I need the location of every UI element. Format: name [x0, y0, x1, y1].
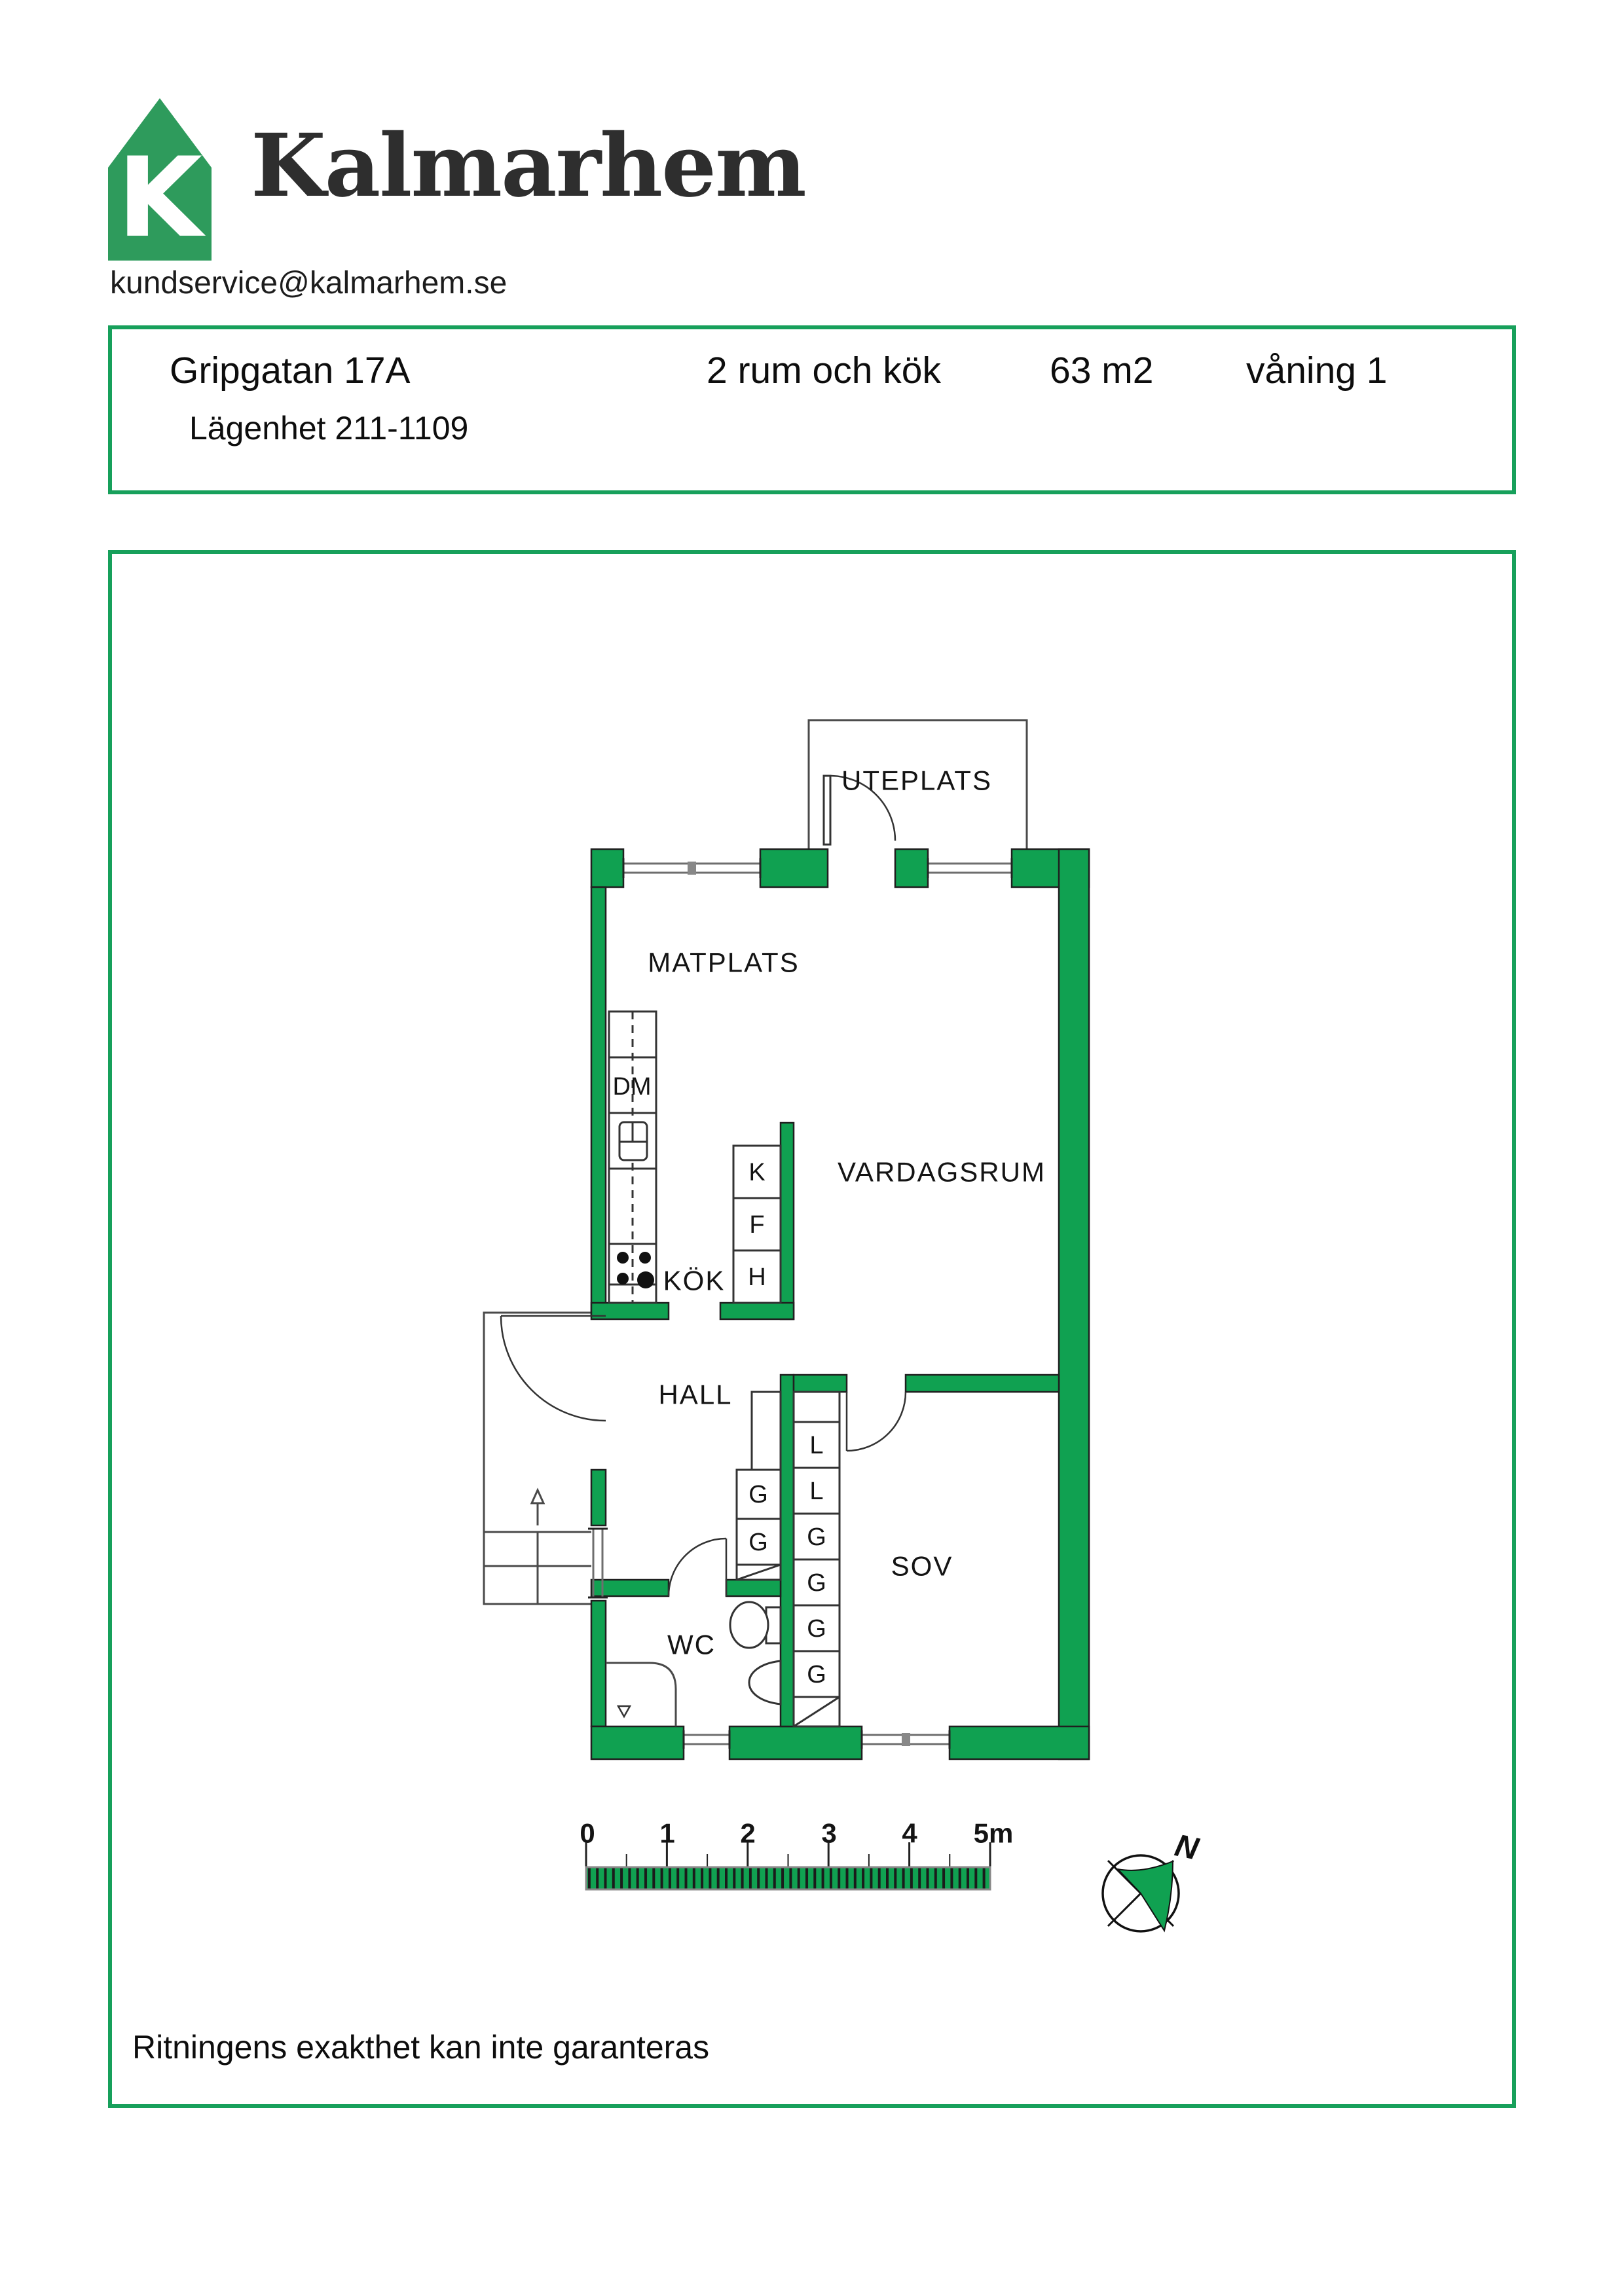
floor-plan: DM K F H L L G G G G G G [108, 550, 1516, 2108]
kfh-cell-label: K [748, 1159, 765, 1186]
sink-icon [749, 1661, 781, 1704]
kfh-unit: K F H [733, 1146, 781, 1303]
address-label: Gripgatan 17A [170, 349, 411, 392]
kfh-cell-label: F [749, 1211, 764, 1239]
wall-left-upper [591, 887, 606, 1316]
kitchen-sink-icon [619, 1122, 647, 1160]
sov-door [847, 1392, 906, 1451]
uteplats-door-leaf [824, 776, 830, 845]
room-label-vardagsrum: VARDAGSRUM [838, 1157, 1046, 1188]
toilet-icon [730, 1602, 781, 1648]
wc-door-arc [669, 1539, 726, 1596]
floor-drain-icon [618, 1706, 630, 1717]
scale-minor-ticks [627, 1854, 950, 1867]
brand-name: Kalmarhem [251, 123, 805, 210]
wc-fixtures [606, 1602, 781, 1726]
entrance-door-arc [501, 1316, 606, 1421]
wall-sov-north-left [794, 1375, 847, 1392]
scale-bar-band [586, 1867, 990, 1889]
wall-top-left-corner [591, 849, 623, 887]
sov-door-arc [847, 1392, 906, 1451]
window-bottom-1 [684, 1730, 729, 1749]
closet-label: G [807, 1523, 826, 1551]
wall-bottom-right [950, 1726, 1089, 1759]
room-label-uteplats: UTEPLATS [841, 765, 992, 796]
disclaimer-text: Ritningens exakthet kan inte garanteras [132, 2028, 709, 2066]
room-label-matplats: MATPLATS [648, 947, 799, 978]
closet-label: L [809, 1432, 823, 1459]
entrance-door [501, 1316, 606, 1421]
kfh-cell-label: H [748, 1264, 766, 1291]
closet-label: G [807, 1615, 826, 1643]
compass-needle [1118, 1861, 1173, 1931]
wall-kfh [781, 1123, 794, 1319]
floor-label: våning 1 [1246, 349, 1388, 392]
window-bottom-2 [862, 1730, 950, 1749]
info-panel: Gripgatan 17A Lägenhet 211-1109 2 rum oc… [108, 325, 1516, 494]
stairs-arrowhead-icon [532, 1490, 544, 1503]
room-label-hall: HALL [658, 1379, 732, 1410]
apartment-id-label: Lägenhet 211-1109 [189, 409, 468, 447]
wall-bottom-left [591, 1726, 684, 1759]
wall-bottom-mid [729, 1726, 862, 1759]
room-label-wc: WC [667, 1630, 716, 1660]
layout-label: 2 rum och kök [707, 349, 941, 392]
scale-tick-label: 5m [974, 1818, 1014, 1849]
scale-tick-label: 0 [580, 1818, 595, 1849]
area-label: 63 m2 [1050, 349, 1153, 392]
closet-label: G [748, 1529, 768, 1556]
logo-letter: K [117, 134, 206, 262]
wall-left-lower [591, 1601, 606, 1726]
closet-label: L [809, 1478, 823, 1505]
sov-closet-column: L L G G G G [794, 1392, 840, 1726]
scale-bar: 0 1 2 3 4 5m [580, 1818, 1013, 1890]
closet-label: G [807, 1569, 826, 1597]
wall-top-block [895, 849, 928, 887]
staircase [484, 1313, 591, 1604]
room-label-sov: SOV [891, 1551, 953, 1582]
compass-icon: N [1103, 1828, 1202, 1931]
brand-email: kundservice@kalmarhem.se [110, 265, 507, 301]
wall-entrance-stub [591, 1470, 606, 1525]
north-label: N [1172, 1828, 1202, 1867]
closet-label: G [807, 1661, 826, 1688]
shower-icon [606, 1663, 676, 1726]
window-top-1 [623, 858, 760, 878]
wall-kfh-foot [720, 1303, 794, 1319]
brand-logo: K [108, 98, 216, 262]
wall-wc-north-right [726, 1580, 781, 1596]
wall-wardrobe [781, 1375, 794, 1726]
wc-door [669, 1539, 726, 1596]
room-label-kok: KÖK [663, 1266, 726, 1296]
window-top-2 [928, 858, 1012, 878]
wall-top-mid [760, 849, 828, 887]
wall-right [1059, 849, 1089, 1759]
kitchen-counter: DM [609, 1011, 656, 1303]
dishwasher-label: DM [612, 1073, 651, 1101]
hall-closet-column: G G [737, 1392, 781, 1580]
wall-sov-north-right [906, 1375, 1059, 1392]
closet-label: G [748, 1481, 768, 1508]
